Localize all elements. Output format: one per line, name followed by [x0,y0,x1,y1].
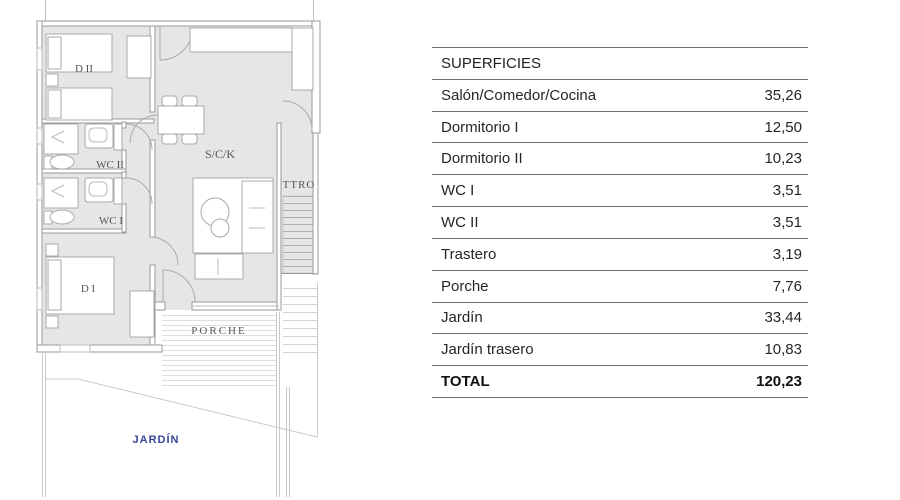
chair [182,134,197,144]
exterior-steps [283,283,317,353]
boundary-lines-top [46,0,314,21]
chair [162,96,177,106]
nightstand [46,74,58,86]
row-label: WC I [441,182,474,199]
wardrobe1 [130,291,154,337]
row-value: 33,44 [764,309,802,326]
wc1-door-leaf [114,178,122,204]
sofa-right [242,181,273,253]
surfaces-table: SUPERFICIES Salón/Comedor/Cocina 35,26 D… [432,47,808,398]
label-storage: TTRO [283,179,316,191]
row-value: 35,26 [764,87,802,104]
row-value: 10,83 [764,341,802,358]
row-value: 12,50 [764,119,802,136]
side-table [211,219,229,237]
table-row: Trastero 3,19 [432,239,808,271]
table-row: Porche 7,76 [432,271,808,303]
bed1-pillow [48,260,61,310]
table-total-row: TOTAL 120,23 [432,366,808,398]
chair [182,96,197,106]
label-garden: JARDÍN [133,433,180,446]
row-label: Dormitorio I [441,119,519,136]
label-living: S/C/K [205,147,235,161]
wall-wc1-d1 [42,229,126,233]
row-value: 7,76 [773,278,802,295]
table-row: WC I 3,51 [432,175,808,207]
row-label: Jardín [441,309,483,326]
label-porch: PORCHE [191,325,246,337]
row-value: 10,23 [764,150,802,167]
dining-table [158,106,204,134]
table-row: Dormitorio I 12,50 [432,112,808,144]
total-label: TOTAL [441,373,490,390]
row-label: Trastero [441,246,496,263]
kitchen-counter-top [190,28,293,52]
row-label: Salón/Comedor/Cocina [441,87,596,104]
table-header-row: SUPERFICIES [432,48,808,80]
label-wc1: WC I [99,215,123,227]
total-value: 120,23 [756,373,802,390]
nightstand1b [46,316,58,328]
kitchen-counter-right [292,28,313,90]
label-bedroom1: D I [81,283,96,295]
wall-right-lower [313,133,318,274]
table-row: Jardín trasero 10,83 [432,334,808,366]
label-bedroom2: D II [75,63,93,75]
chair [162,134,177,144]
row-value: 3,51 [773,214,802,231]
toilet1 [50,210,74,224]
table-row: Jardín 33,44 [432,303,808,335]
wall-wc2-front-a [122,122,126,128]
row-label: Dormitorio II [441,150,523,167]
row-value: 3,51 [773,182,802,199]
floor-plan: D II WC II WC I D I S/C/K TTRO PORCHE JA… [0,0,360,500]
wall-bottom-left [37,345,162,352]
sofa-bottom [195,254,243,279]
nightstand1a [46,244,58,256]
table-row: Dormitorio II 10,23 [432,143,808,175]
floor-plan-drawing: D II WC II WC I D I S/C/K TTRO PORCHE JA… [0,0,360,500]
row-label: WC II [441,214,479,231]
stairs [283,196,314,273]
shower1 [44,178,78,208]
table-row: Salón/Comedor/Cocina 35,26 [432,80,808,112]
wall-top [37,21,320,26]
wardrobe2 [127,36,151,78]
wall-living-bottom-a [155,302,165,310]
label-wc2: WC II [96,159,124,171]
wall-storage [277,123,281,310]
wall-wc1-front-a [122,172,126,178]
wall-hall-b [150,140,155,237]
row-label: Jardín trasero [441,341,534,358]
wc2-door-leaf [114,124,122,150]
bed2b-pillow [48,90,61,118]
row-value: 3,19 [773,246,802,263]
floorplan-sheet: D II WC II WC I D I S/C/K TTRO PORCHE JA… [0,0,900,500]
toilet2 [50,155,74,169]
table-row: WC II 3,51 [432,207,808,239]
bed2a-pillow [48,37,61,69]
table-title: SUPERFICIES [441,55,541,72]
porch-decking [162,312,276,390]
shower2 [44,124,78,154]
row-label: Porche [441,278,489,295]
